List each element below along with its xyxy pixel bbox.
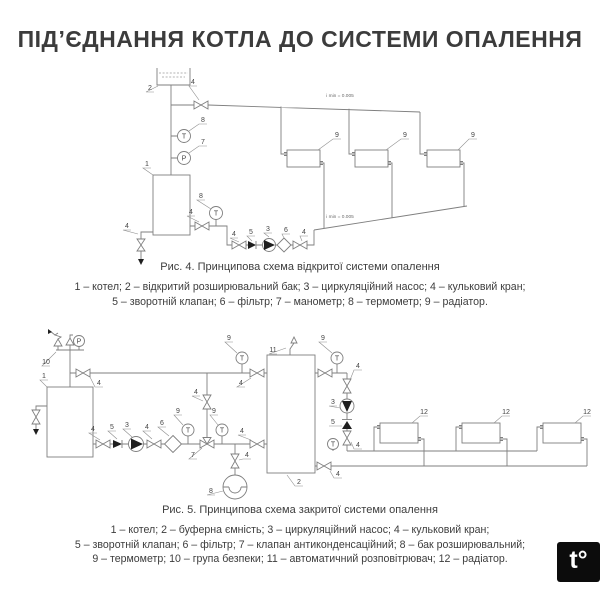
- fig5-legend: 1 – котел; 2 – буферна ємність; 3 – цирк…: [0, 523, 600, 567]
- fig5-callout-ball-valve: 4: [356, 363, 360, 370]
- fig4-callout-pump: 3: [266, 226, 270, 233]
- fig5-legend-line: 9 – термометр; 10 – група безпеки; 11 – …: [0, 552, 600, 567]
- fig4-filter: [277, 238, 291, 252]
- fig4-slope-label: i min = 0.005: [326, 93, 354, 99]
- fig5-anticondensation-valve: [200, 438, 214, 449]
- thermometer-letter: T: [240, 356, 245, 363]
- fig4-callout-expansion-tank: 2: [148, 85, 152, 92]
- fig4-diagram: T P T 2 4 8 7 1 8 4 4 4 5 3 6 4 9 9 9 i …: [0, 60, 600, 272]
- fig5-callout-pump: 3: [331, 399, 335, 406]
- fig5-primary-pump: [129, 437, 144, 452]
- fig5-callout-ball-valve: 4: [240, 428, 244, 435]
- fig5-callout-boiler: 1: [42, 373, 46, 380]
- fig5-filter: [165, 436, 182, 453]
- fig5-callout-thermometer: 9: [321, 335, 325, 342]
- fig4-callout-ball-valve: 4: [125, 223, 129, 230]
- fig5-callout-radiator: 12: [583, 409, 591, 416]
- fig5-callout-radiator: 12: [420, 409, 428, 416]
- fig4-thermometer-gauge: T: [178, 130, 191, 143]
- fig4-callout-ball-valve: 4: [191, 79, 195, 86]
- manometer-letter: P: [182, 156, 187, 163]
- fig4-callout-radiator: 9: [335, 132, 339, 139]
- fig5-legend-line: 1 – котел; 2 – буферна ємність; 3 – цирк…: [0, 523, 600, 538]
- fig4-callout-ball-valve: 4: [189, 209, 193, 216]
- fig4-callout-check-valve: 5: [249, 229, 253, 236]
- fig5-air-vent: [291, 337, 297, 343]
- fig5-radiators: [377, 423, 584, 443]
- manometer-letter: P: [77, 339, 82, 346]
- thermometer-letter: T: [331, 442, 336, 449]
- fig4-callout-boiler: 1: [145, 161, 149, 168]
- fig4-legend-line: 5 – зворотній клапан; 6 – фільтр; 7 – ма…: [0, 295, 600, 310]
- fig4-radiators: [284, 150, 463, 167]
- fig5-callout-check-valve: 5: [331, 419, 335, 426]
- fig5-secondary-pump: [340, 399, 354, 413]
- fig5-buffer-tank: [267, 355, 315, 473]
- fig5-callout-ball-valve: 4: [245, 452, 249, 459]
- fig5-callout-ball-valve: 4: [239, 380, 243, 387]
- fig5-callout-thermometer: 9: [212, 408, 216, 415]
- thermometer-letter: T: [335, 356, 340, 363]
- fig5-callout-thermometer: 9: [176, 408, 180, 415]
- fig4-pump: [263, 239, 276, 252]
- fig5-callout-ball-valve: 4: [356, 442, 360, 449]
- fig5-diagram: P: [0, 328, 600, 508]
- fig5-callouts: 10 1 4 9 4 4 11 2 9 4 3 5 4 12 12 12 4 4…: [42, 335, 591, 495]
- brand-logo: t°: [557, 542, 600, 582]
- fig5-callout-air-vent: 11: [269, 347, 276, 354]
- fig5-expansion-tank: [223, 475, 247, 499]
- fig4-callout-radiator: 9: [403, 132, 407, 139]
- fig4-return-thermometer-gauge: T: [210, 207, 223, 220]
- fig4-check-valve: [248, 241, 256, 249]
- fig5-callout-ball-valve: 4: [194, 389, 198, 396]
- fig5-callout-pump: 3: [125, 422, 129, 429]
- fig4-callout-thermometer: 8: [201, 117, 205, 124]
- fig5-boiler: [47, 387, 93, 457]
- thermometer-letter: T: [220, 428, 225, 435]
- thermometer-letter: T: [214, 211, 219, 218]
- page-title: ПІД’ЄДНАННЯ КОТЛА ДО СИСТЕМИ ОПАЛЕННЯ: [0, 26, 600, 53]
- fig5-callout-ball-valve: 4: [91, 426, 95, 433]
- fig4-callout-thermometer: 8: [199, 193, 203, 200]
- fig5-callout-radiator: 12: [502, 409, 510, 416]
- fig5-callout-ball-valve: 4: [145, 424, 149, 431]
- fig5-callout-anticondensation-valve: 7: [191, 452, 195, 459]
- fig4-slope-label: i min = 0.005: [326, 214, 354, 220]
- fig5-caption: Рис. 5. Принципова схема закритої систем…: [0, 504, 600, 516]
- fig4-callout-filter: 6: [284, 227, 288, 234]
- fig5-callout-expansion-tank: 8: [209, 488, 213, 495]
- fig4-callout-manometer: 7: [201, 139, 205, 146]
- fig4-callout-radiator: 9: [471, 132, 475, 139]
- thermometer-letter: T: [182, 134, 187, 141]
- fig5-callout-check-valve: 5: [110, 424, 114, 431]
- fig5-callout-ball-valve: 4: [336, 471, 340, 478]
- fig4-callout-ball-valve: 4: [302, 229, 306, 236]
- fig4-boiler: [153, 175, 190, 235]
- fig5-callout-thermometer: 9: [227, 335, 231, 342]
- fig4-legend: 1 – котел; 2 – відкритий розширювальний …: [0, 280, 600, 309]
- thermometer-letter: T: [186, 428, 191, 435]
- fig5-drain-arrow: [33, 429, 39, 435]
- brand-logo-text: t°: [569, 548, 587, 576]
- fig4-legend-line: 1 – котел; 2 – відкритий розширювальний …: [0, 280, 600, 295]
- fig5-leaders: [40, 342, 591, 495]
- fig4-caption: Рис. 4. Принципова схема відкритої систе…: [0, 261, 600, 273]
- fig5-callout-buffer-tank: 2: [297, 479, 301, 486]
- fig5-callout-safety-group: 10: [42, 359, 50, 366]
- fig5-callout-ball-valve: 4: [97, 380, 101, 387]
- fig5-callout-filter: 6: [160, 420, 164, 427]
- fig5-safety-group: P: [48, 329, 85, 347]
- fig4-manometer-gauge: P: [178, 152, 191, 165]
- fig5-legend-line: 5 – зворотній клапан; 6 – фільтр; 7 – кл…: [0, 538, 600, 553]
- fig4-callout-ball-valve: 4: [232, 231, 236, 238]
